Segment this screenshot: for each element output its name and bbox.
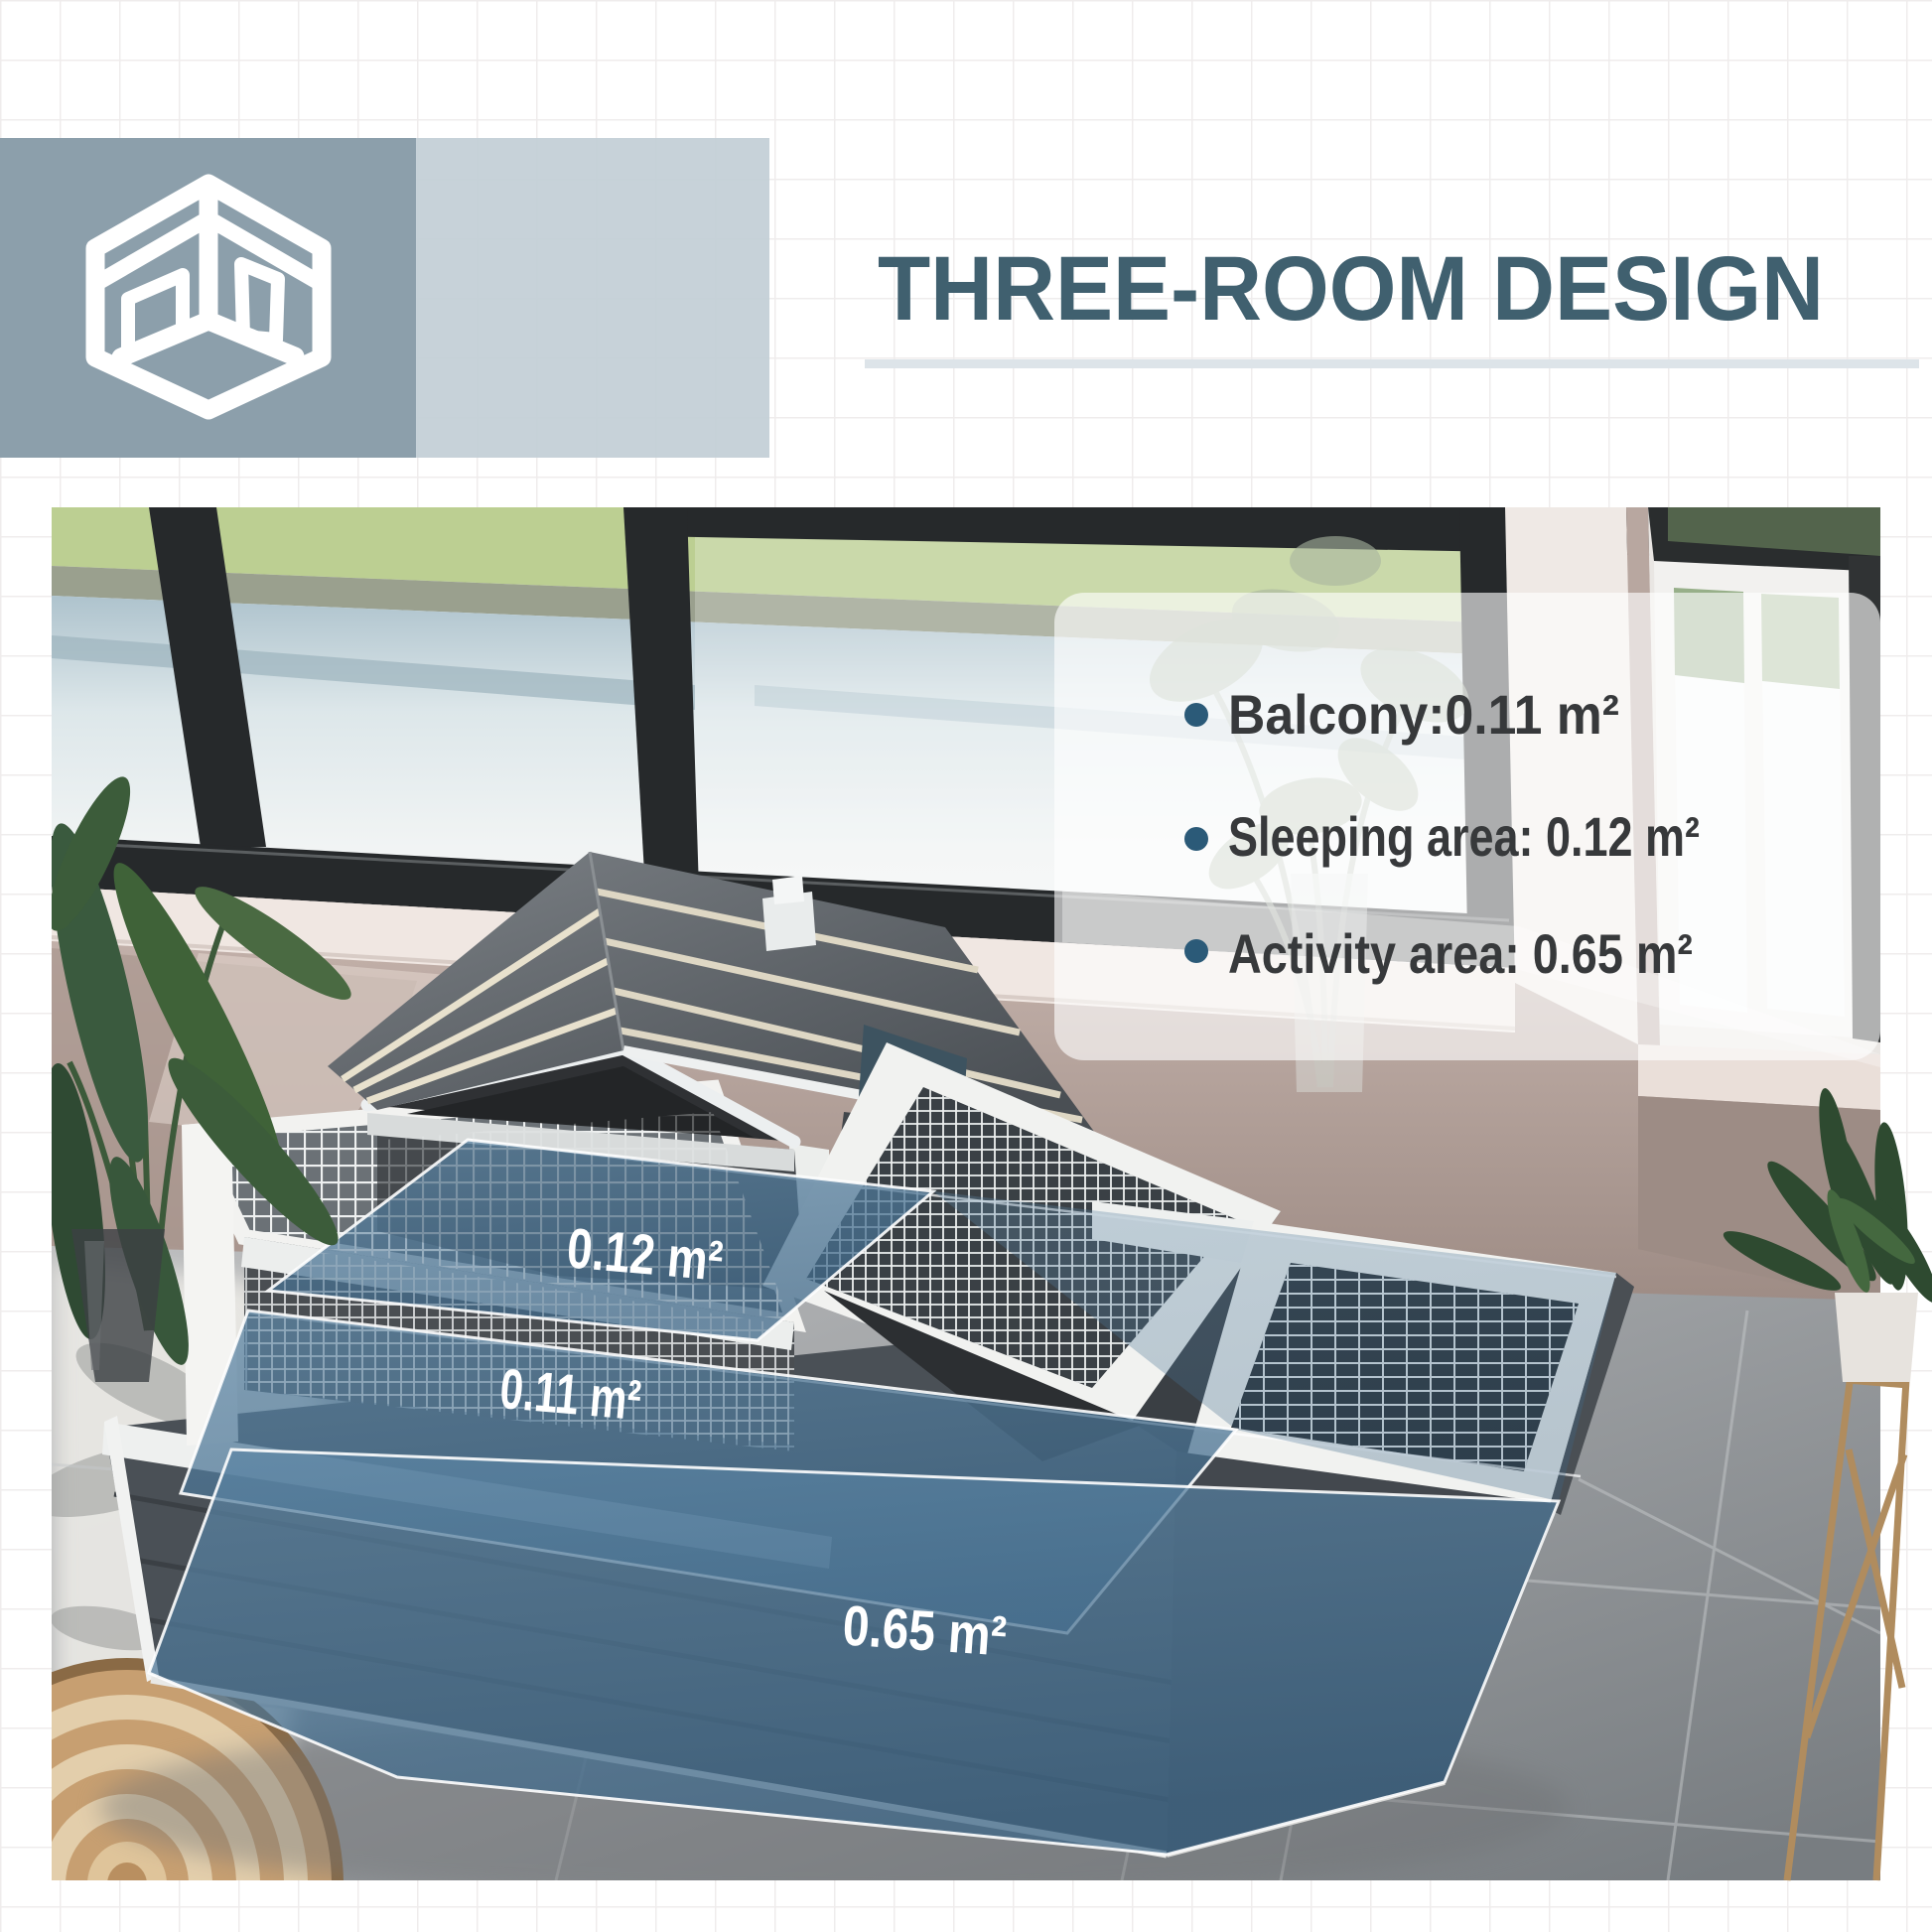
svg-text:0.65 m²: 0.65 m²: [841, 1593, 1009, 1668]
svg-text:Sleeping area: 0.12 m²: Sleeping area: 0.12 m²: [1228, 805, 1700, 868]
svg-text:0.12 m²: 0.12 m²: [565, 1216, 726, 1293]
svg-text:Activity area: 0.65 m²: Activity area: 0.65 m²: [1228, 922, 1693, 985]
svg-text:0.11 m²: 0.11 m²: [497, 1357, 643, 1433]
svg-text:Balcony:0.11 m²: Balcony:0.11 m²: [1228, 683, 1619, 746]
svg-text:THREE-ROOM DESIGN: THREE-ROOM DESIGN: [878, 238, 1824, 340]
